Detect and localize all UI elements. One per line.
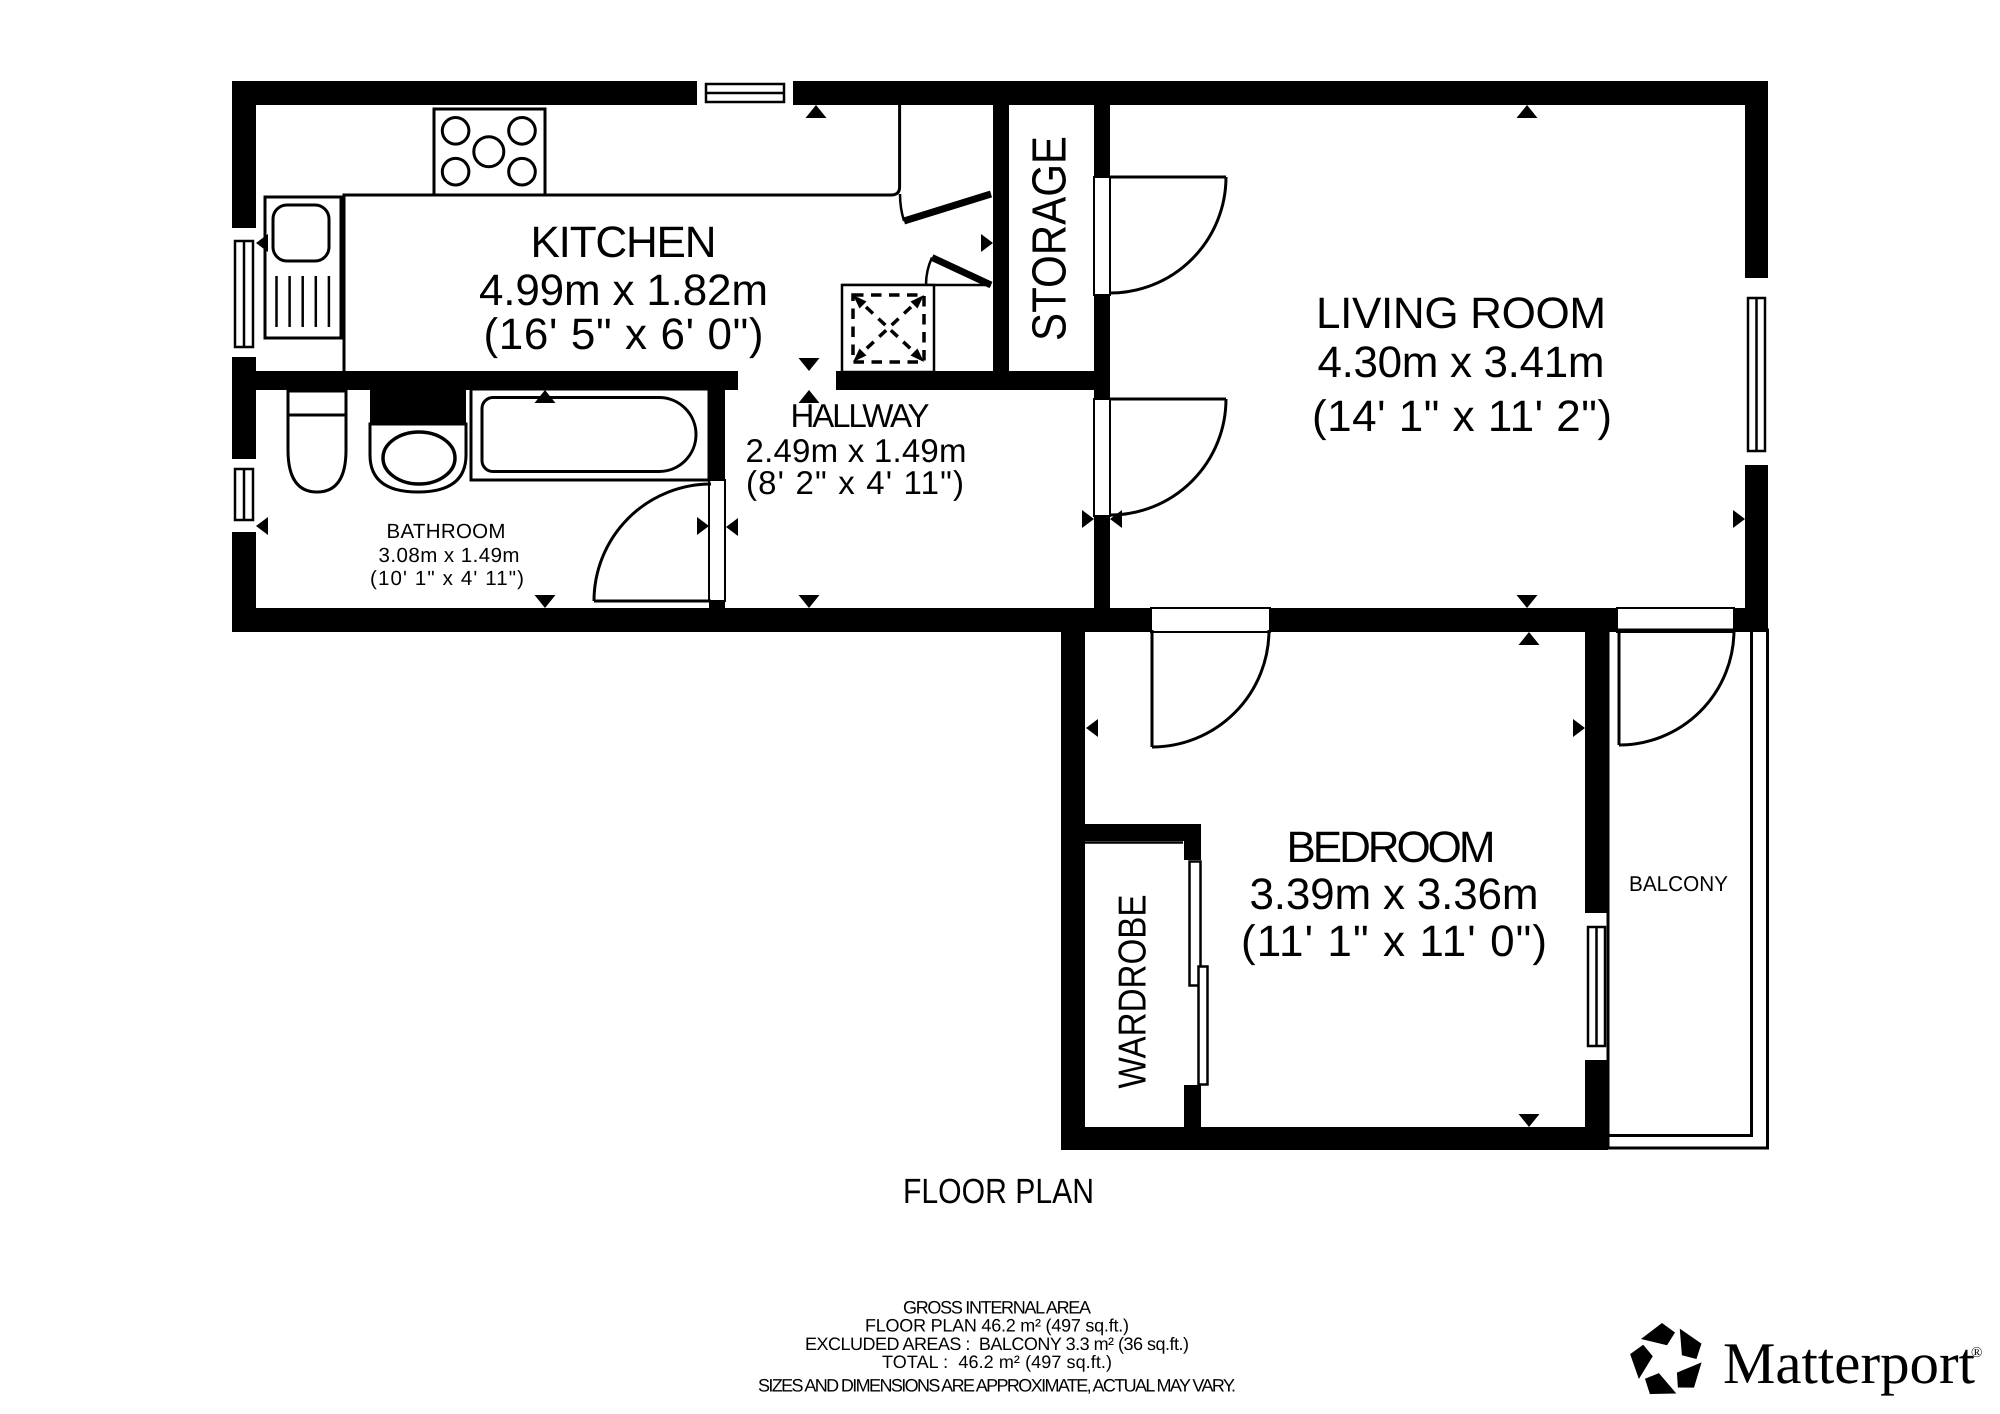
svg-text:GROSS INTERNAL AREA: GROSS INTERNAL AREA — [903, 1298, 1091, 1318]
svg-text:(11' 1" x 11' 0"): (11' 1" x 11' 0") — [1241, 917, 1547, 966]
svg-text:HALLWAY: HALLWAY — [791, 397, 930, 434]
svg-text:(8' 2" x 4' 11"): (8' 2" x 4' 11") — [746, 464, 964, 501]
svg-text:KITCHEN: KITCHEN — [531, 218, 717, 267]
svg-text:LIVING ROOM: LIVING ROOM — [1316, 289, 1606, 338]
svg-text:SIZES AND DIMENSIONS ARE APPRO: SIZES AND DIMENSIONS ARE APPROXIMATE, AC… — [758, 1376, 1236, 1396]
svg-text:®: ® — [1971, 1345, 1982, 1361]
svg-text:(14' 1" x 11' 2"): (14' 1" x 11' 2") — [1312, 392, 1612, 441]
svg-text:3.39m x 3.36m: 3.39m x 3.36m — [1250, 870, 1539, 919]
svg-text:Matterport: Matterport — [1723, 1330, 1976, 1396]
svg-text:BATHROOM: BATHROOM — [387, 520, 506, 543]
svg-text:4.99m x 1.82m: 4.99m x 1.82m — [479, 266, 768, 315]
svg-text:FLOOR PLAN: FLOOR PLAN — [903, 1172, 1094, 1211]
svg-text:BEDROOM: BEDROOM — [1287, 823, 1496, 872]
svg-text:BALCONY: BALCONY — [1629, 872, 1728, 896]
svg-text:WARDROBE: WARDROBE — [1112, 895, 1155, 1089]
svg-text:3.08m x 1.49m: 3.08m x 1.49m — [379, 544, 520, 567]
svg-text:FLOOR PLAN 46.2 m² (497 sq.ft.: FLOOR PLAN 46.2 m² (497 sq.ft.) — [865, 1316, 1129, 1336]
svg-text:STORAGE: STORAGE — [1024, 136, 1077, 341]
svg-text:(10' 1" x 4' 11"): (10' 1" x 4' 11") — [370, 567, 524, 590]
svg-text:4.30m x 3.41m: 4.30m x 3.41m — [1318, 338, 1605, 387]
svg-text:EXCLUDED AREAS : BALCONY 3.3: EXCLUDED AREAS : BALCONY 3.3 m² (36 sq.f… — [805, 1334, 1189, 1354]
svg-text:(16' 5" x 6' 0"): (16' 5" x 6' 0") — [484, 310, 764, 359]
svg-text:TOTAL : 46.2 m² (497 sq.ft.): TOTAL : 46.2 m² (497 sq.ft.) — [882, 1352, 1112, 1372]
